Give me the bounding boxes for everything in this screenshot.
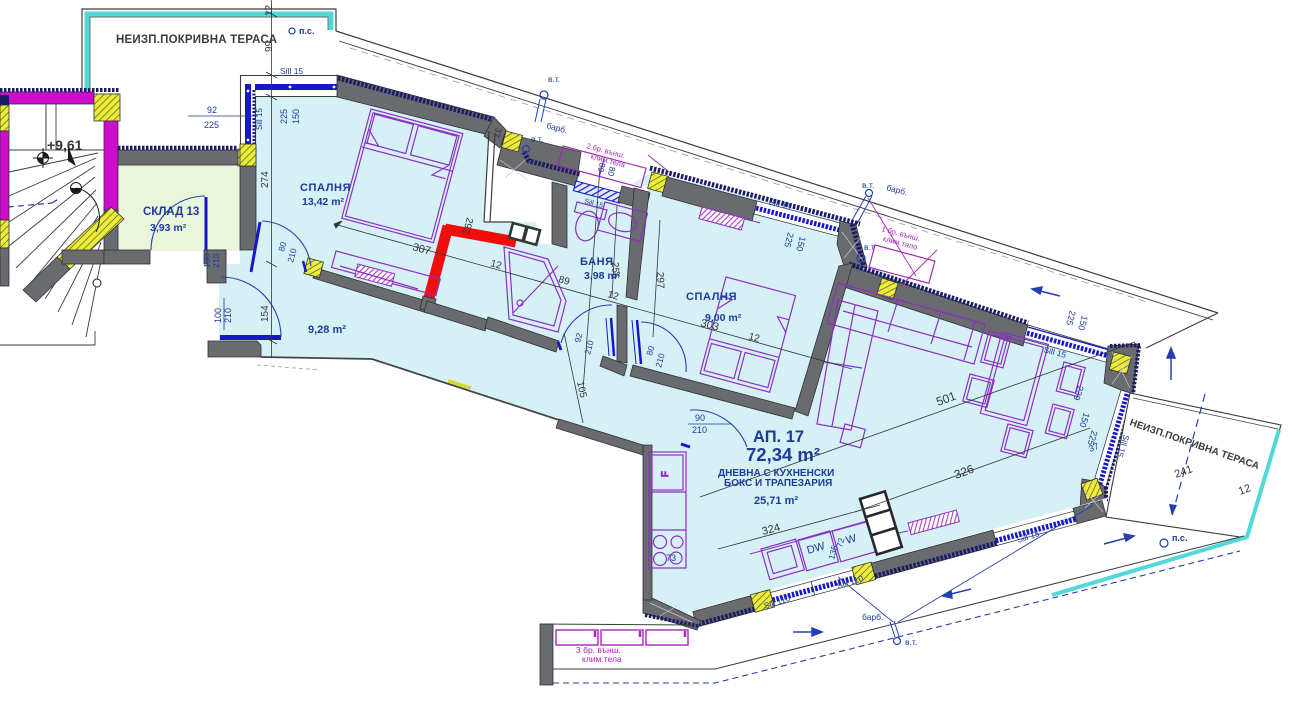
svg-text:9,28 m²: 9,28 m²	[308, 324, 346, 336]
svg-text:73: 73	[666, 553, 676, 563]
svg-text:БОКС И ТРАПЕЗАРИЯ: БОКС И ТРАПЕЗАРИЯ	[724, 478, 832, 489]
svg-text:п.с.: п.с.	[299, 26, 314, 36]
svg-text:клим.тела: клим.тела	[582, 654, 622, 664]
svg-text:72,34 m²: 72,34 m²	[746, 444, 820, 465]
svg-text:100: 100	[213, 308, 223, 323]
svg-text:в.т.: в.т.	[862, 180, 874, 190]
svg-text:СКЛАД 13: СКЛАД 13	[143, 206, 199, 218]
svg-text:в.т.: в.т.	[548, 74, 560, 84]
svg-text:+9,61: +9,61	[47, 137, 83, 153]
svg-text:СПАЛНЯ: СПАЛНЯ	[686, 291, 737, 303]
svg-text:барб.: барб.	[862, 612, 883, 622]
svg-text:150: 150	[291, 109, 301, 124]
svg-text:9,00 m²: 9,00 m²	[705, 312, 742, 324]
svg-text:СПАЛНЯ: СПАЛНЯ	[300, 182, 351, 194]
svg-text:БАНЯ: БАНЯ	[580, 256, 614, 268]
svg-text:НЕИЗП.ПОКРИВНА ТЕРАСА: НЕИЗП.ПОКРИВНА ТЕРАСА	[116, 34, 277, 46]
svg-text:210: 210	[223, 308, 233, 323]
svg-text:в.т.: в.т.	[905, 637, 917, 647]
svg-text:274: 274	[260, 171, 271, 188]
svg-text:Sill 15: Sill 15	[280, 66, 303, 76]
svg-text:210: 210	[692, 425, 707, 435]
svg-text:F: F	[660, 471, 670, 477]
svg-text:99: 99	[264, 40, 275, 52]
svg-text:154: 154	[260, 305, 271, 322]
svg-text:3,93 m²: 3,93 m²	[150, 222, 187, 234]
svg-text:25,71 m²: 25,71 m²	[754, 495, 798, 507]
svg-text:210: 210	[211, 254, 221, 268]
svg-text:в.т: в.т	[864, 242, 875, 252]
svg-text:3,98 m²: 3,98 m²	[584, 270, 621, 282]
svg-text:90: 90	[695, 413, 705, 423]
svg-text:п.с.: п.с.	[1172, 533, 1187, 543]
svg-text:225: 225	[279, 109, 289, 124]
svg-text:297: 297	[654, 272, 666, 289]
svg-text:13,42 m²: 13,42 m²	[302, 196, 345, 208]
svg-text:12: 12	[264, 4, 275, 16]
svg-text:92: 92	[207, 105, 217, 115]
svg-text:225: 225	[204, 120, 219, 130]
svg-text:в.т.: в.т.	[531, 134, 543, 144]
svg-text:Sill 15: Sill 15	[255, 108, 264, 130]
